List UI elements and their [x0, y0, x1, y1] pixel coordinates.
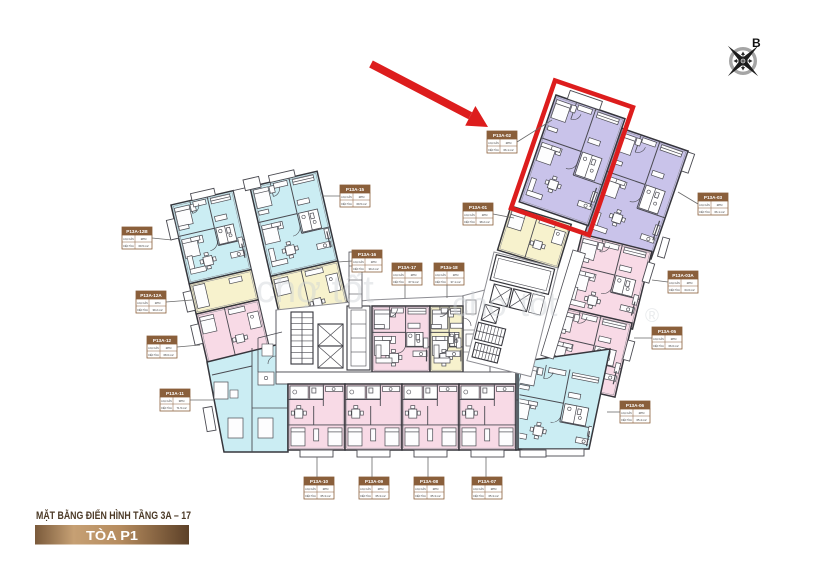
svg-text:LOẠI CĂN: LOẠI CĂN [161, 399, 172, 403]
svg-text:2PN: 2PN [639, 411, 645, 415]
svg-text:68.6 m2: 68.6 m2 [164, 353, 174, 357]
svg-text:2PN: 2PN [378, 487, 384, 491]
svg-text:P13A-16: P13A-16 [358, 252, 377, 257]
svg-text:39.2 m2: 39.2 m2 [153, 308, 163, 312]
svg-text:DIỆN TÍCH: DIỆN TÍCH [148, 352, 159, 357]
svg-text:DIỆN TÍCH: DIỆN TÍCH [699, 209, 710, 214]
svg-text:2PN: 2PN [491, 487, 497, 491]
svg-text:66.6 m2: 66.6 m2 [669, 344, 679, 348]
svg-text:P13A-09: P13A-09 [365, 479, 384, 484]
svg-text:67.9 m2: 67.9 m2 [409, 280, 419, 284]
svg-text:65.3 m2: 65.3 m2 [376, 494, 386, 498]
svg-text:2PN: 2PN [359, 195, 365, 199]
svg-text:DIỆN TÍCH: DIỆN TÍCH [464, 219, 475, 224]
svg-text:P13A-01: P13A-01 [469, 205, 488, 210]
svg-text:66.1 m2: 66.1 m2 [504, 148, 514, 152]
svg-text:DIỆN TÍCH: DIỆN TÍCH [161, 405, 172, 410]
svg-text:P13A-02: P13A-02 [493, 133, 512, 138]
svg-text:LOẠI CĂN: LOẠI CĂN [353, 260, 364, 264]
svg-text:LOẠI CĂN: LOẠI CĂN [464, 213, 475, 217]
svg-text:65.3 m2: 65.3 m2 [489, 494, 499, 498]
svg-text:66.1 m2: 66.1 m2 [715, 210, 725, 214]
svg-text:37.1 m2: 37.1 m2 [451, 280, 461, 284]
svg-text:P13A-05: P13A-05 [658, 329, 677, 334]
svg-text:DIỆN TÍCH: DIỆN TÍCH [435, 279, 446, 284]
svg-text:2PN: 2PN [433, 487, 439, 491]
svg-text:P13A-12: P13A-12 [153, 338, 172, 343]
svg-text:LOẠI CĂN: LOẠI CĂN [488, 141, 499, 145]
svg-text:69.5 m2: 69.5 m2 [139, 244, 149, 248]
svg-text:65.3 m2: 65.3 m2 [431, 494, 441, 498]
svg-text:LOẠI CĂN: LOẠI CĂN [473, 487, 484, 491]
svg-text:DIỆN TÍCH: DIỆN TÍCH [415, 493, 426, 498]
svg-text:2PN: 2PN [411, 273, 417, 277]
svg-text:38.2 m2: 38.2 m2 [480, 220, 490, 224]
svg-text:®: ® [645, 306, 659, 327]
svg-text:MẶT BẰNG ĐIỂN HÌNH TẦNG 3A – 1: MẶT BẰNG ĐIỂN HÌNH TẦNG 3A – 17 [36, 509, 191, 522]
svg-text:P13A-10: P13A-10 [310, 479, 329, 484]
svg-text:P13A-12A: P13A-12A [140, 293, 162, 298]
svg-text:P13A-07: P13A-07 [478, 479, 497, 484]
svg-text:64.6 m2: 64.6 m2 [685, 288, 695, 292]
svg-text:2PN: 2PN [717, 203, 723, 207]
svg-text:P13A-15: P13A-15 [346, 187, 365, 192]
svg-text:LOẠI CĂN: LOẠI CĂN [415, 487, 426, 491]
svg-text:LOẠI CĂN: LOẠI CĂN [653, 337, 664, 341]
svg-text:LOẠI CĂN: LOẠI CĂN [699, 203, 710, 207]
svg-text:71.5 m2: 71.5 m2 [177, 406, 187, 410]
svg-text:DIỆN TÍCH: DIỆN TÍCH [473, 493, 484, 498]
svg-text:P13A-03A: P13A-03A [672, 273, 694, 278]
svg-text:LOẠI CĂN: LOẠI CĂN [137, 301, 148, 305]
svg-text:LOẠI CĂN: LOẠI CĂN [393, 273, 404, 277]
svg-text:chợ tốt: chợ tốt [256, 269, 374, 311]
svg-text:B: B [752, 36, 761, 50]
svg-text:P13A-11: P13A-11 [166, 391, 184, 396]
svg-text:DIỆN TÍCH: DIỆN TÍCH [360, 493, 371, 498]
svg-text:LOẠI CĂN: LOẠI CĂN [341, 195, 352, 199]
svg-text:1PN: 1PN [155, 301, 161, 305]
svg-text:P13a-18: P13a-18 [440, 265, 458, 270]
svg-text:LOẠI CĂN: LOẠI CĂN [148, 346, 159, 350]
svg-text:2PN: 2PN [166, 346, 172, 350]
svg-text:LOẠI CĂN: LOẠI CĂN [360, 487, 371, 491]
svg-text:DIỆN TÍCH: DIỆN TÍCH [653, 343, 664, 348]
svg-text:LOẠI CĂN: LOẠI CĂN [435, 273, 446, 277]
svg-text:DIỆN TÍCH: DIỆN TÍCH [393, 279, 404, 284]
svg-text:LOẠI CĂN: LOẠI CĂN [621, 411, 632, 415]
svg-text:DIỆN TÍCH: DIỆN TÍCH [137, 307, 148, 312]
svg-text:chợ tốt: chợ tốt [452, 286, 558, 324]
svg-text:P13A-03: P13A-03 [704, 195, 723, 200]
svg-text:69.5 m2: 69.5 m2 [357, 202, 367, 206]
svg-text:DIỆN TÍCH: DIỆN TÍCH [488, 147, 499, 152]
svg-text:1PN: 1PN [371, 260, 377, 264]
svg-text:65.3 m2: 65.3 m2 [321, 494, 331, 498]
svg-text:P13A-17: P13A-17 [398, 265, 417, 270]
svg-text:1PN: 1PN [482, 213, 488, 217]
svg-text:LOẠI CĂN: LOẠI CĂN [123, 237, 134, 241]
svg-text:DIỆN TÍCH: DIỆN TÍCH [669, 287, 680, 292]
svg-text:P13A-08: P13A-08 [420, 479, 439, 484]
svg-text:LOẠI CĂN: LOẠI CĂN [305, 487, 316, 491]
svg-text:P13A-12B: P13A-12B [126, 229, 148, 234]
svg-text:2PN: 2PN [323, 487, 329, 491]
svg-text:TÒA P1: TÒA P1 [86, 528, 138, 543]
svg-text:2PN: 2PN [687, 281, 693, 285]
svg-text:2PN: 2PN [671, 337, 677, 341]
svg-text:DIỆN TÍCH: DIỆN TÍCH [123, 243, 134, 248]
svg-text:65.4 m2: 65.4 m2 [637, 418, 647, 422]
svg-text:2PN: 2PN [141, 237, 147, 241]
svg-text:P13A-06: P13A-06 [626, 403, 645, 408]
svg-text:1PN: 1PN [453, 273, 459, 277]
svg-text:3PN: 3PN [179, 399, 185, 403]
svg-text:2PN: 2PN [506, 141, 512, 145]
svg-text:DIỆN TÍCH: DIỆN TÍCH [341, 201, 352, 206]
svg-text:DIỆN TÍCH: DIỆN TÍCH [621, 417, 632, 422]
svg-text:LOẠI CĂN: LOẠI CĂN [669, 281, 680, 285]
svg-text:DIỆN TÍCH: DIỆN TÍCH [305, 493, 316, 498]
